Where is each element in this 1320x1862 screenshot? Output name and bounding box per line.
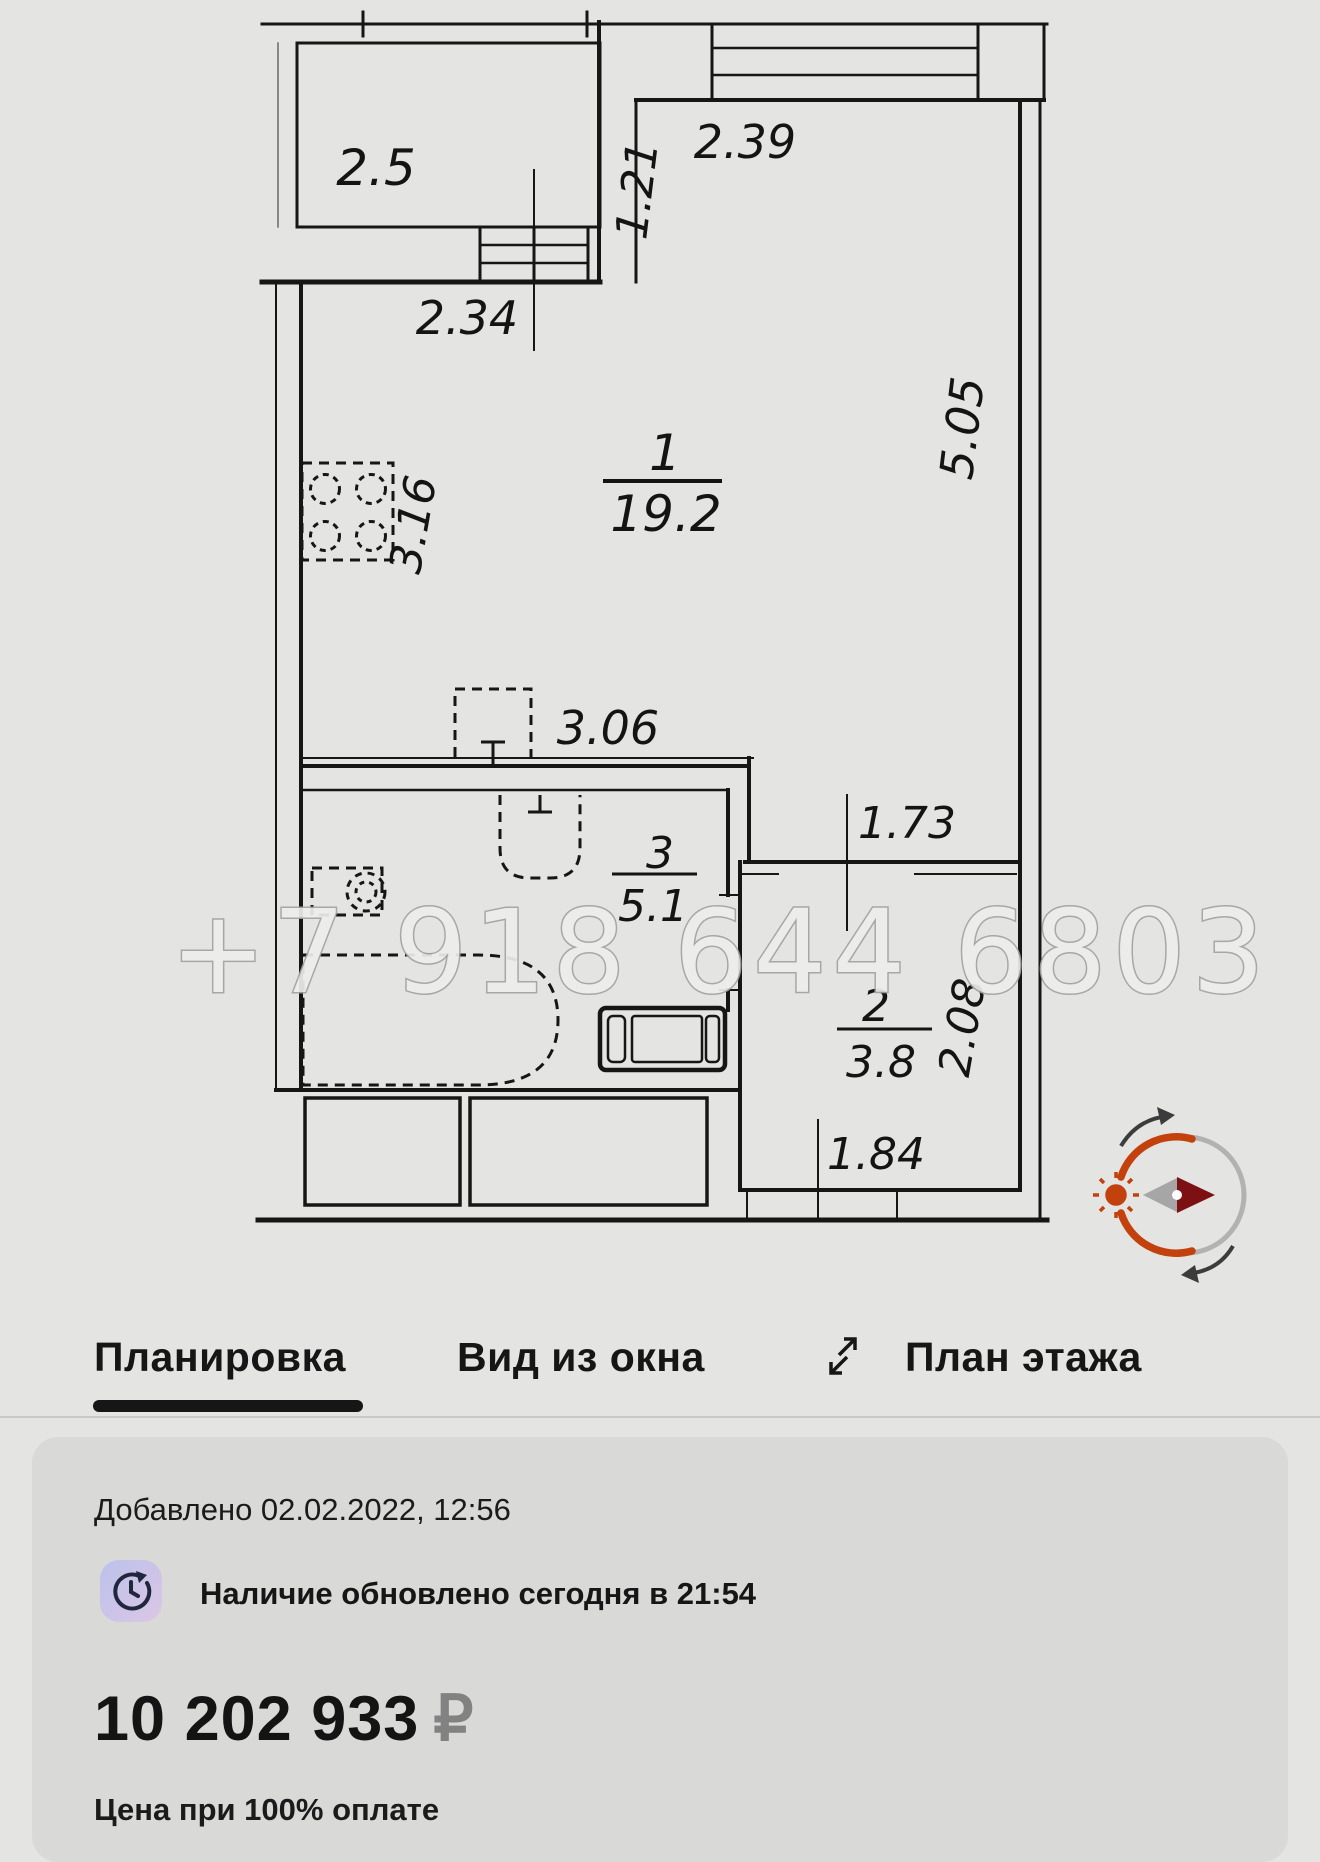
dim-1-73: 1.73 <box>858 798 956 849</box>
room3-number: 3 <box>646 828 674 879</box>
active-tab-underline <box>93 1400 363 1412</box>
currency-symbol: ₽ <box>433 1684 474 1754</box>
taps <box>481 742 552 812</box>
sun-icon <box>1093 1172 1139 1218</box>
room1-area: 19.2 <box>610 485 721 543</box>
compass-needle-east <box>1177 1177 1215 1213</box>
availability-text: Наличие обновлено сегодня в 21:54 <box>200 1576 756 1612</box>
dim-2-34: 2.34 <box>416 291 518 345</box>
dim-1-21: 1.21 <box>606 139 669 242</box>
price-note: Цена при 100% оплате <box>94 1792 439 1828</box>
dim-3-06: 3.06 <box>557 701 659 755</box>
price-value: 10 202 933 <box>94 1684 419 1754</box>
tab-floor-plan[interactable]: План этажа <box>905 1334 1142 1381</box>
price-row: 10 202 933₽ <box>94 1682 474 1755</box>
dim-5-05: 5.05 <box>929 374 995 482</box>
room2-area: 3.8 <box>846 1037 916 1088</box>
floor-plan: 2.5 2.39 1.21 2.34 1 19.2 3.16 5.05 3.06… <box>0 0 1320 1320</box>
compass-needle-west <box>1143 1178 1177 1212</box>
listing-page: 2.5 2.39 1.21 2.34 1 19.2 3.16 5.05 3.06… <box>0 0 1320 1862</box>
dim-3-16: 3.16 <box>380 472 447 577</box>
tab-window-view[interactable]: Вид из окна <box>457 1334 705 1381</box>
added-date-text: Добавлено 02.02.2022, 12:56 <box>94 1492 511 1528</box>
compass-rotation-control[interactable] <box>1093 1107 1244 1283</box>
expand-icon[interactable] <box>822 1332 864 1378</box>
section-divider <box>0 1416 1320 1418</box>
dim-2-39: 2.39 <box>694 115 796 169</box>
balcony-area-label: 2.5 <box>336 139 416 197</box>
phone-watermark: +7 918 644 6803 <box>170 886 1271 1020</box>
dim-1-84: 1.84 <box>827 1129 925 1180</box>
room1-number: 1 <box>649 424 681 482</box>
availability-clock-icon <box>100 1560 162 1622</box>
tab-layout[interactable]: Планировка <box>94 1334 346 1381</box>
media-tabs: Планировка Вид из окна План этажа <box>0 1328 1320 1418</box>
